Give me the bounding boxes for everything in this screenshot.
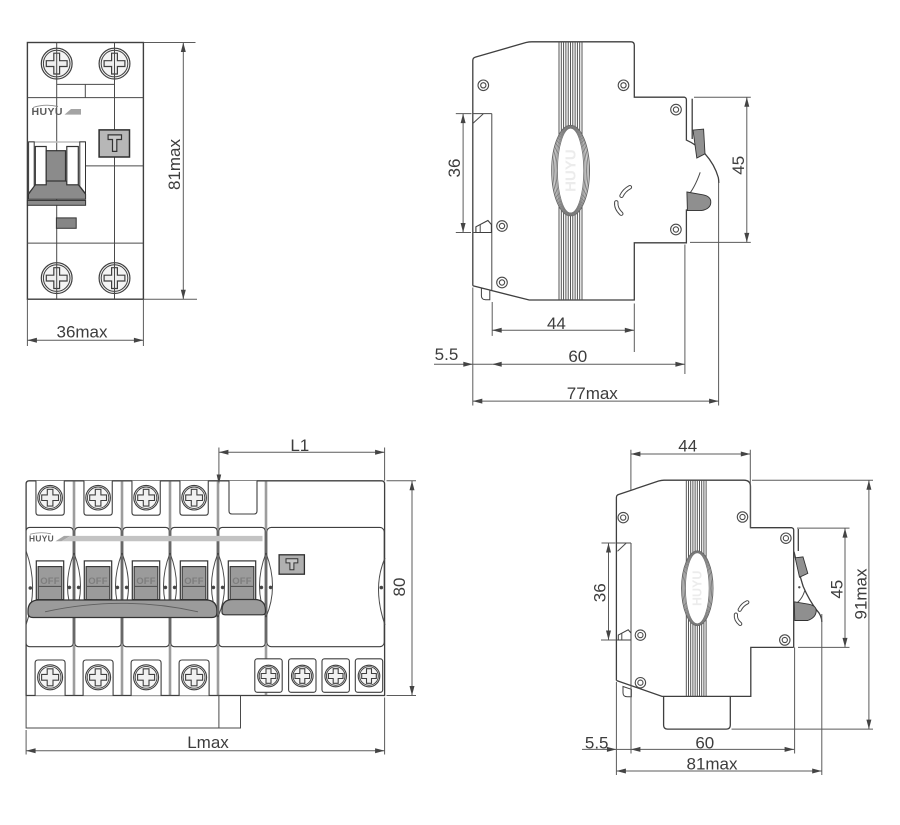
svg-text:45: 45 [729, 156, 748, 175]
svg-text:OFF: OFF [232, 576, 252, 587]
svg-text:HUYU: HUYU [691, 571, 705, 606]
svg-text:5.5: 5.5 [585, 734, 609, 753]
svg-text:OFF: OFF [40, 576, 60, 587]
svg-text:36max: 36max [56, 322, 108, 341]
svg-text:OFF: OFF [136, 576, 156, 587]
svg-text:44: 44 [678, 436, 697, 455]
svg-text:36: 36 [591, 583, 610, 602]
svg-text:60: 60 [695, 733, 714, 752]
svg-text:L1: L1 [290, 436, 309, 455]
svg-text:OFF: OFF [184, 576, 204, 587]
svg-text:5.5: 5.5 [435, 345, 459, 364]
svg-text:91max: 91max [852, 568, 871, 620]
svg-text:45: 45 [828, 580, 847, 599]
svg-text:81max: 81max [686, 754, 738, 773]
svg-text:60: 60 [568, 347, 587, 366]
svg-text:81max: 81max [165, 138, 184, 190]
svg-text:HUYU: HUYU [563, 149, 580, 192]
svg-text:HUYU: HUYU [29, 533, 54, 543]
svg-text:HUYU: HUYU [32, 106, 63, 118]
svg-text:80: 80 [390, 578, 409, 597]
svg-text:Lmax: Lmax [187, 733, 229, 752]
svg-text:44: 44 [547, 314, 566, 333]
svg-text:36: 36 [445, 159, 464, 178]
svg-text:77max: 77max [567, 384, 619, 403]
svg-text:OFF: OFF [88, 576, 108, 587]
